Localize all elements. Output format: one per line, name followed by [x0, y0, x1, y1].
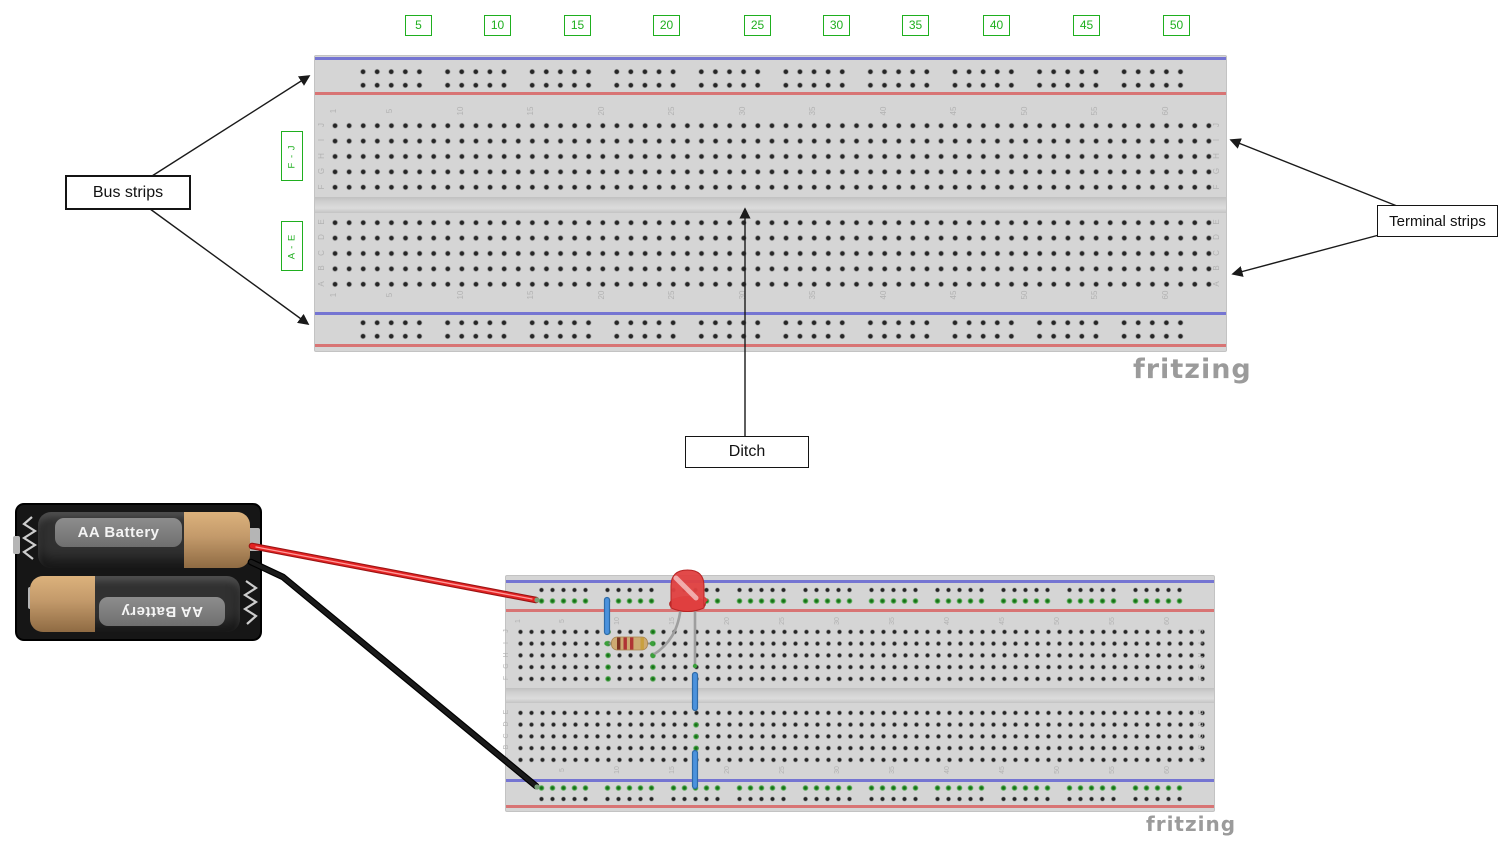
row-letter: D	[318, 235, 326, 241]
bus-strips-label: Bus strips	[93, 184, 163, 202]
column-number: 45	[999, 766, 1007, 774]
column-number: 5	[386, 109, 394, 113]
row-letter: F	[503, 676, 511, 680]
row-letter: F	[1198, 676, 1206, 680]
row-group-ae-callout: A - E	[281, 221, 303, 271]
column-marker: 30	[823, 15, 850, 36]
battery-cell-bottom: AA Battery	[30, 576, 240, 632]
column-number: 30	[739, 291, 747, 300]
row-letter: B	[1213, 266, 1221, 271]
column-number: 20	[724, 766, 732, 774]
row-letter: G	[503, 664, 511, 669]
row-letter: J	[503, 629, 511, 633]
red-wire	[252, 546, 536, 600]
column-number: 20	[724, 617, 732, 625]
terminal-strips-callout: Terminal strips	[1377, 205, 1498, 237]
column-number: 10	[614, 766, 622, 774]
column-number: 60	[1164, 617, 1172, 625]
column-number: 50	[1054, 766, 1062, 774]
row-group-fj-label: F - J	[287, 144, 298, 168]
column-number: 55	[1091, 107, 1099, 116]
row-letter: F	[1213, 184, 1221, 189]
bus-strip-top-row2-powered	[536, 595, 1186, 607]
column-number: 55	[1109, 766, 1117, 774]
column-number: 10	[457, 107, 465, 116]
row-letter: I	[503, 642, 511, 644]
column-number: 40	[880, 107, 888, 116]
black-wire-outline	[251, 562, 536, 786]
battery-positive-tip	[30, 576, 95, 632]
column-marker: 5	[405, 15, 432, 36]
column-number: 15	[669, 766, 677, 774]
row-group-fj-callout: F - J	[281, 131, 303, 181]
bus-strip-top	[356, 65, 1189, 92]
row-letter: A	[318, 281, 326, 286]
column-number: 35	[889, 617, 897, 625]
row-letter: G	[1213, 168, 1221, 174]
row-letter: E	[318, 219, 326, 224]
column-number: 25	[779, 766, 787, 774]
column-number: 45	[950, 107, 958, 116]
column-number: 25	[668, 291, 676, 300]
row-letter: E	[1213, 219, 1221, 224]
row-letter: H	[318, 153, 326, 159]
terminal-strip-ae	[328, 215, 1216, 292]
row-letter: J	[1213, 123, 1221, 127]
column-number: 30	[834, 617, 842, 625]
ditch-label: Ditch	[729, 443, 765, 461]
bus-positive-line	[315, 312, 1226, 315]
row-letter: B	[318, 266, 326, 271]
red-wire-outline	[252, 546, 536, 600]
breadboard-diagram: 5101520253035404550 fritzing fritzing JJ…	[0, 0, 1511, 853]
terminal-strips-label: Terminal strips	[1389, 213, 1486, 230]
column-number: 55	[1091, 291, 1099, 300]
row-letter: G	[1198, 664, 1206, 669]
row-letter: G	[318, 168, 326, 174]
column-number: 15	[527, 107, 535, 116]
terminal-strips-arrow-top	[1231, 140, 1397, 206]
column-number: 50	[1054, 617, 1062, 625]
powered-column	[602, 626, 614, 685]
bus-strip-bottom	[356, 316, 1189, 343]
row-letter: C	[318, 250, 326, 256]
row-group-ae-label: A - E	[287, 233, 298, 259]
column-number: 5	[559, 768, 567, 772]
column-number: 50	[1021, 107, 1029, 116]
column-number: 45	[999, 617, 1007, 625]
column-marker: 35	[902, 15, 929, 36]
black-wire	[251, 562, 536, 786]
bus-positive-line	[315, 57, 1226, 60]
column-number: 15	[527, 291, 535, 300]
row-letter: C	[1213, 250, 1221, 256]
column-number: 1	[515, 619, 523, 623]
column-number: 30	[834, 766, 842, 774]
row-letter: I	[1198, 642, 1206, 644]
column-number: 15	[669, 617, 677, 625]
column-marker: 15	[564, 15, 591, 36]
column-number: 30	[739, 107, 747, 116]
column-number: 25	[668, 107, 676, 116]
row-letter: D	[1213, 235, 1221, 241]
battery-label-band: AA Battery	[55, 518, 182, 547]
terminal-strip-fj	[515, 626, 1208, 685]
battery-wires	[251, 546, 540, 790]
terminal-strip-fj	[328, 118, 1216, 195]
column-number: 1	[330, 109, 338, 113]
row-letter: A	[1198, 757, 1206, 762]
row-letter: E	[1198, 710, 1206, 715]
bus-negative-line	[315, 92, 1226, 95]
column-marker: 50	[1163, 15, 1190, 36]
column-marker: 45	[1073, 15, 1100, 36]
row-letter: D	[503, 721, 511, 726]
column-marker: 40	[983, 15, 1010, 36]
column-number: 40	[944, 617, 952, 625]
ditch-groove	[315, 197, 1226, 213]
column-number: 1	[330, 293, 338, 297]
column-number: 35	[889, 766, 897, 774]
column-marker: 10	[484, 15, 511, 36]
fritzing-logo: fritzing	[1146, 812, 1236, 836]
battery-positive-tip	[184, 512, 250, 568]
row-letter: H	[1198, 652, 1206, 657]
column-number: 40	[944, 766, 952, 774]
column-number: 60	[1164, 766, 1172, 774]
column-number: 25	[779, 617, 787, 625]
column-number: 5	[559, 619, 567, 623]
row-letter: A	[1213, 281, 1221, 286]
column-number: 35	[809, 107, 817, 116]
red-wire-sheen	[256, 547, 532, 599]
bus-strip-top-row1	[536, 584, 1186, 596]
column-number: 10	[457, 291, 465, 300]
breadboard-lower	[505, 575, 1215, 812]
column-number: 60	[1162, 107, 1170, 116]
battery-label-band: AA Battery	[99, 597, 225, 626]
ditch-groove	[506, 688, 1214, 703]
battery-cell-top: AA Battery	[38, 512, 250, 568]
row-letter: J	[318, 123, 326, 127]
powered-column	[647, 626, 659, 685]
column-number: 20	[598, 107, 606, 116]
ditch-callout: Ditch	[685, 436, 809, 468]
powered-column	[690, 719, 702, 754]
bus-negative-line	[506, 609, 1214, 612]
bus-strip-bottom-row1-powered	[536, 782, 1186, 794]
column-number: 40	[880, 291, 888, 300]
column-number: 10	[614, 617, 622, 625]
column-number: 55	[1109, 617, 1117, 625]
column-number: 50	[1021, 291, 1029, 300]
row-letter: D	[1198, 721, 1206, 726]
bus-strip-bottom-row2	[536, 793, 1186, 805]
row-letter: C	[1198, 733, 1206, 738]
row-letter: H	[503, 652, 511, 657]
column-number: 45	[950, 291, 958, 300]
column-marker: 25	[744, 15, 771, 36]
row-letter: B	[503, 745, 511, 750]
battery-label: AA Battery	[121, 603, 203, 620]
row-letter: E	[503, 710, 511, 715]
column-marker: 20	[653, 15, 680, 36]
battery-contact-left	[13, 536, 20, 554]
row-letter: J	[1198, 629, 1206, 633]
fritzing-logo: fritzing	[1133, 354, 1252, 385]
battery-label: AA Battery	[78, 524, 160, 541]
column-number: 20	[598, 291, 606, 300]
row-letter: A	[503, 757, 511, 762]
column-number: 35	[809, 291, 817, 300]
bus-negative-line	[506, 805, 1214, 808]
column-number: 60	[1162, 291, 1170, 300]
column-number: 5	[386, 293, 394, 297]
breadboard-upper	[314, 55, 1227, 352]
terminal-strip-ae	[515, 707, 1208, 766]
row-letter: F	[318, 184, 326, 189]
row-letter: C	[503, 733, 511, 738]
terminal-strips-arrow-bottom	[1233, 235, 1379, 274]
row-letter: H	[1213, 153, 1221, 159]
bus-negative-line	[315, 344, 1226, 347]
row-letter: B	[1198, 745, 1206, 750]
column-number: 1	[515, 768, 523, 772]
bus-strips-callout: Bus strips	[65, 175, 191, 210]
